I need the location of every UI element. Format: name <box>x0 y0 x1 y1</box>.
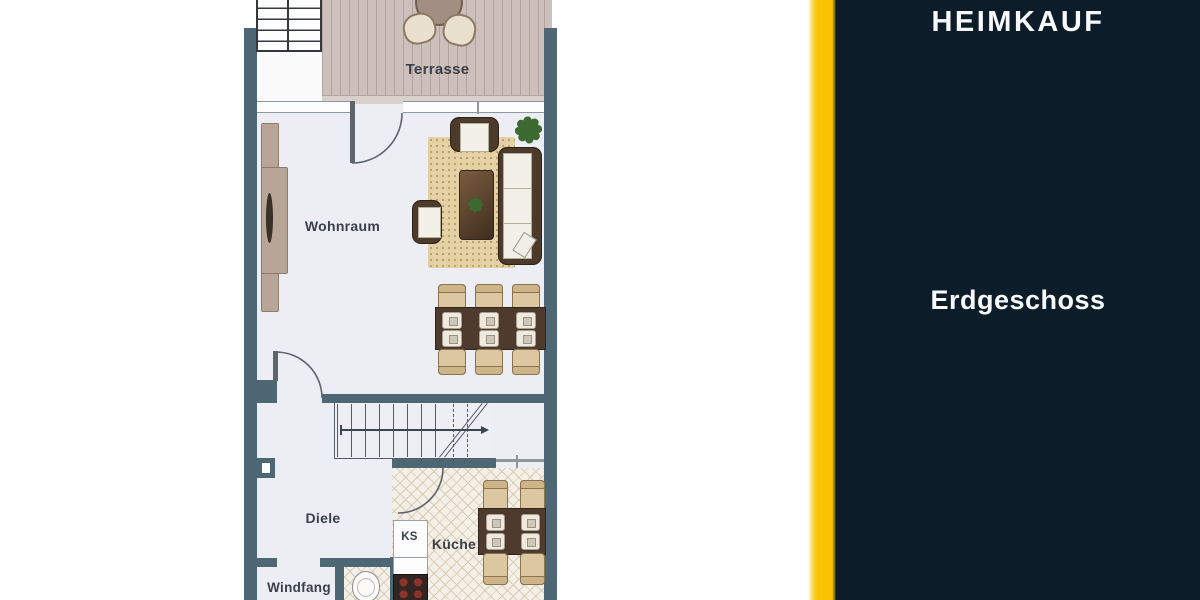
kitchen-door-arc <box>398 468 443 513</box>
vestibule-label: Windfang <box>260 580 338 595</box>
terrace-label: Terrasse <box>375 61 500 78</box>
brand-panel: HEIMKAUF Erdgeschoss <box>836 0 1200 600</box>
page: Terrasse Wohnraum Diele Windfang Küche K… <box>0 0 1200 600</box>
brand-logo-text: HEIMKAUF <box>836 6 1200 39</box>
terrace-door-arc <box>352 113 402 163</box>
floor-title: Erdgeschoss <box>836 285 1200 316</box>
fridge-label: KS <box>393 531 426 543</box>
living-room-label: Wohnraum <box>300 218 385 234</box>
kitchen-label: Küche <box>431 536 477 552</box>
accent-stripe <box>808 0 836 600</box>
hall-door-arc <box>276 352 322 398</box>
hallway-label: Diele <box>293 510 353 526</box>
